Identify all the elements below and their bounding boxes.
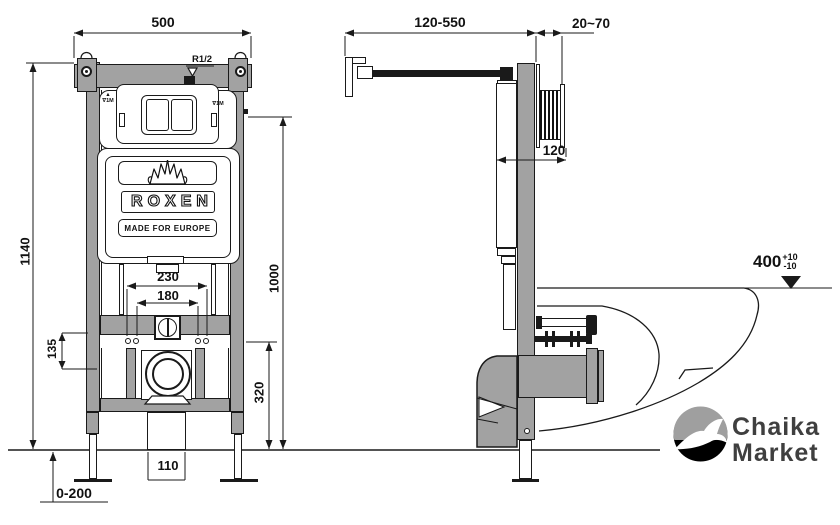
seagull-icon <box>672 406 729 463</box>
dim-drain-center-height: 320 <box>253 371 266 415</box>
watermark-line2: Market <box>732 441 819 466</box>
dim-flush-plate-height: 1000 <box>268 257 281 301</box>
level-marker-triangle <box>781 276 801 289</box>
dim-bracket-range: 120-550 <box>402 15 478 29</box>
dim-stud-span-outer: 230 <box>150 270 186 283</box>
dimension-arrows <box>30 30 802 462</box>
dim-outlet-width: 110 <box>150 459 186 472</box>
dim-frame-height: 1140 <box>19 230 32 274</box>
inlet-marker-triangle <box>188 68 197 76</box>
technical-drawing-canvas: ▲ ∇1M ∇1M ROXEN MADE FOR EUROPE <box>0 0 840 525</box>
dim-wall-thickness: 20~70 <box>566 17 616 31</box>
chaika-market-logo: Chaika Market <box>668 405 833 475</box>
dim-leg-adjustment: 0-200 <box>42 486 106 500</box>
dim-stud-span-inner: 180 <box>150 289 186 302</box>
dim-cistern-depth: 120 <box>539 144 569 158</box>
drain-bracket-trapezoid <box>145 396 190 404</box>
dim-rim-height: 400+10-10 <box>753 253 798 271</box>
dim-frame-width: 500 <box>143 15 183 29</box>
dim-inlet-thread: R1/2 <box>187 55 217 65</box>
watermark-line1: Chaika <box>732 415 820 440</box>
dim-crossbar-offset: 135 <box>46 329 58 369</box>
